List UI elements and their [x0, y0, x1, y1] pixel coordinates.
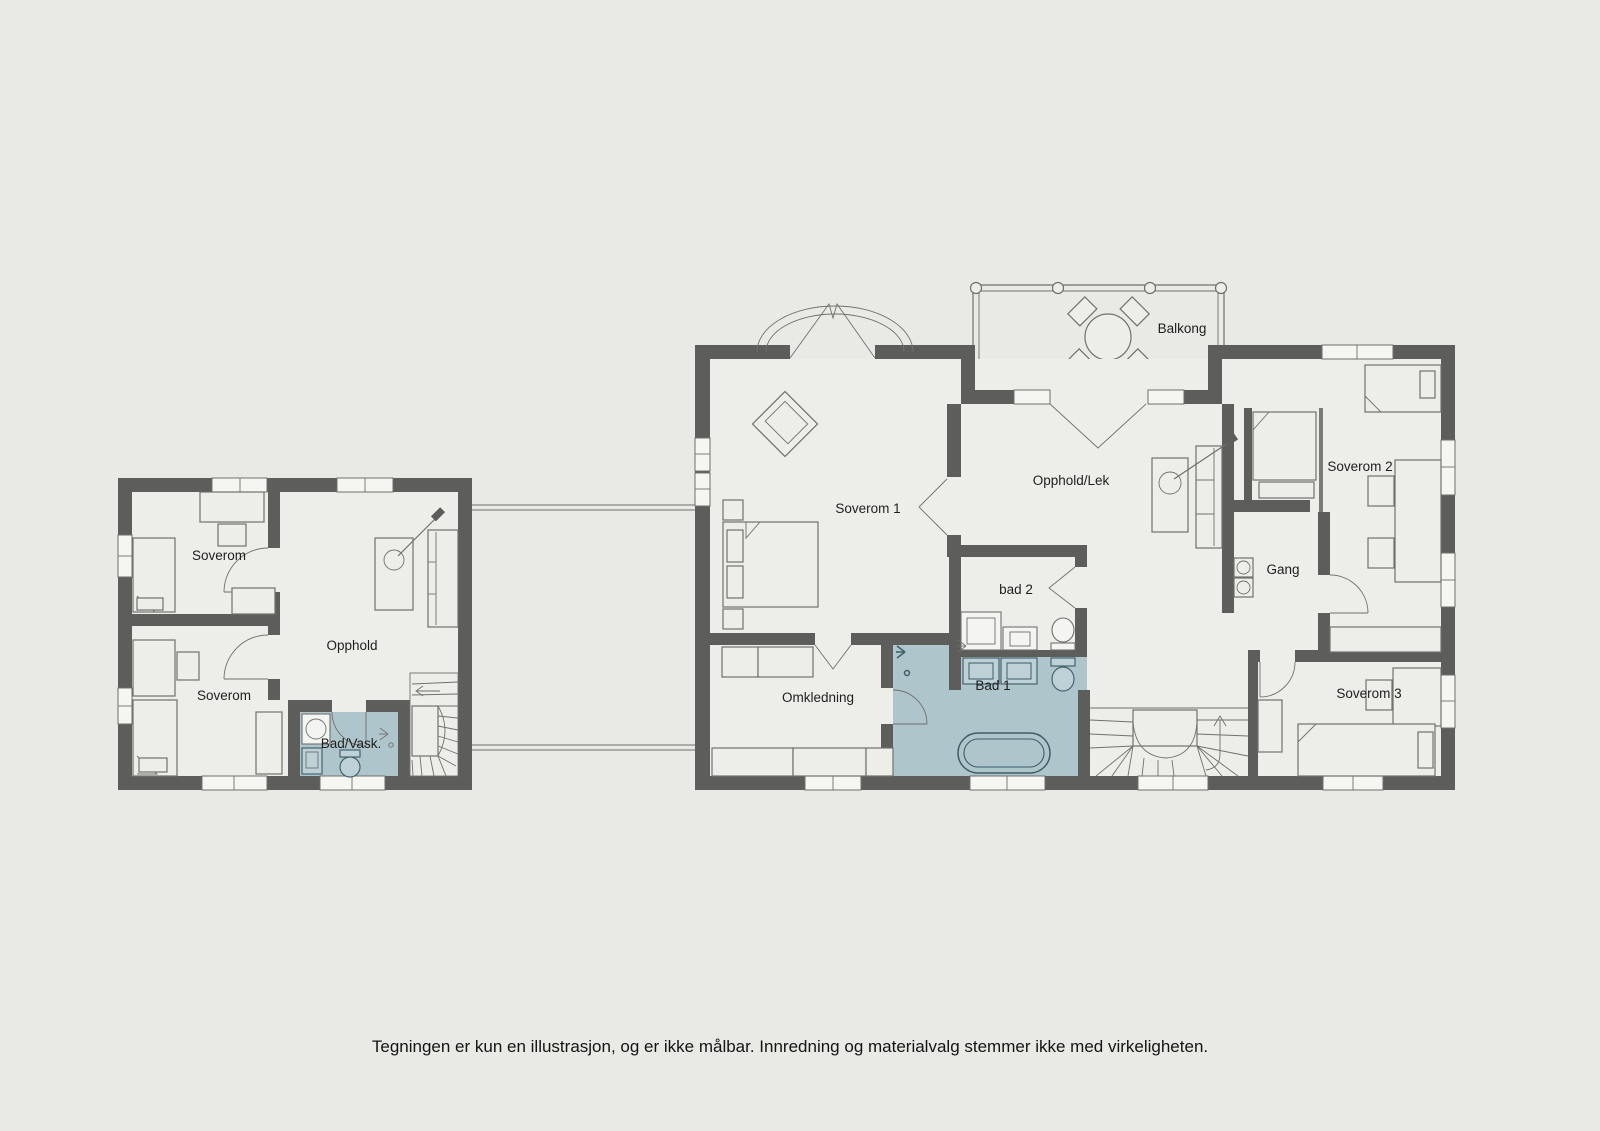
desk-chair [1368, 538, 1394, 568]
room-label-soverom-upper-left: Soverom [192, 548, 246, 563]
wardrobe [256, 712, 282, 774]
room-label-bad-1: Bad 1 [975, 678, 1010, 693]
room-label-soverom-2: Soverom 2 [1327, 459, 1392, 474]
pillow [727, 566, 743, 598]
toilet-bowl [1052, 667, 1074, 691]
double-bed [1298, 724, 1435, 776]
toilet-bowl [340, 757, 360, 777]
desk-chair [1368, 476, 1394, 506]
double-door-swing [790, 304, 875, 358]
toilet-tank [1051, 658, 1075, 666]
room-label-bad-vask: Bad/Vask. [321, 736, 382, 751]
balcony-table [1085, 314, 1131, 360]
pillow [139, 758, 167, 772]
floor-plan: Soverom Soverom Opphold Bad/Vask. [0, 0, 1600, 1131]
room-label-omkledning: Omkledning [782, 690, 854, 705]
desk [133, 640, 175, 696]
wardrobe [1258, 700, 1282, 752]
walkway-lines [472, 505, 695, 750]
dresser [1259, 482, 1314, 498]
closet [1253, 412, 1316, 480]
nightstand [723, 609, 743, 629]
building-right: Balkong Soverom 1 Opphold/Lek bad 2 Bad … [695, 283, 1455, 791]
pillow [1420, 371, 1435, 398]
stair-landing [1133, 710, 1197, 746]
wardrobe [866, 748, 893, 776]
toilet-tank [1051, 643, 1075, 650]
pillow [727, 530, 743, 562]
disclaimer-text: Tegningen er kun en illustrasjon, og er … [372, 1037, 1208, 1056]
building-left: Soverom Soverom Opphold Bad/Vask. [118, 478, 472, 790]
desk [1395, 460, 1441, 582]
pillow [1418, 732, 1433, 768]
wardrobe [1330, 627, 1441, 652]
wardrobe [232, 588, 275, 614]
room-label-gang: Gang [1266, 562, 1299, 577]
desk-chair [218, 524, 246, 546]
room-label-soverom-1: Soverom 1 [835, 501, 900, 516]
room-label-soverom-3: Soverom 3 [1336, 686, 1401, 701]
wardrobe [712, 748, 793, 776]
room-label-bad-2: bad 2 [999, 582, 1033, 597]
room-label-soverom-lower-left: Soverom [197, 688, 251, 703]
coffee-table [375, 538, 413, 610]
desk-chair [177, 652, 199, 680]
room-label-opphold-lek: Opphold/Lek [1033, 473, 1110, 488]
room-label-opphold: Opphold [326, 638, 377, 653]
room-label-balkong: Balkong [1158, 321, 1207, 336]
pillow [137, 598, 163, 610]
wardrobe [793, 748, 866, 776]
sink [1003, 627, 1037, 650]
right-floor-balcony-strip [961, 404, 1222, 418]
wardrobe [758, 647, 813, 677]
nightstand [723, 500, 743, 520]
toilet-tank [340, 750, 360, 757]
coffee-table [1152, 458, 1188, 532]
wardrobe [722, 647, 758, 677]
desk [200, 492, 264, 522]
toilet-bowl [1052, 618, 1074, 642]
sofa [428, 530, 458, 627]
